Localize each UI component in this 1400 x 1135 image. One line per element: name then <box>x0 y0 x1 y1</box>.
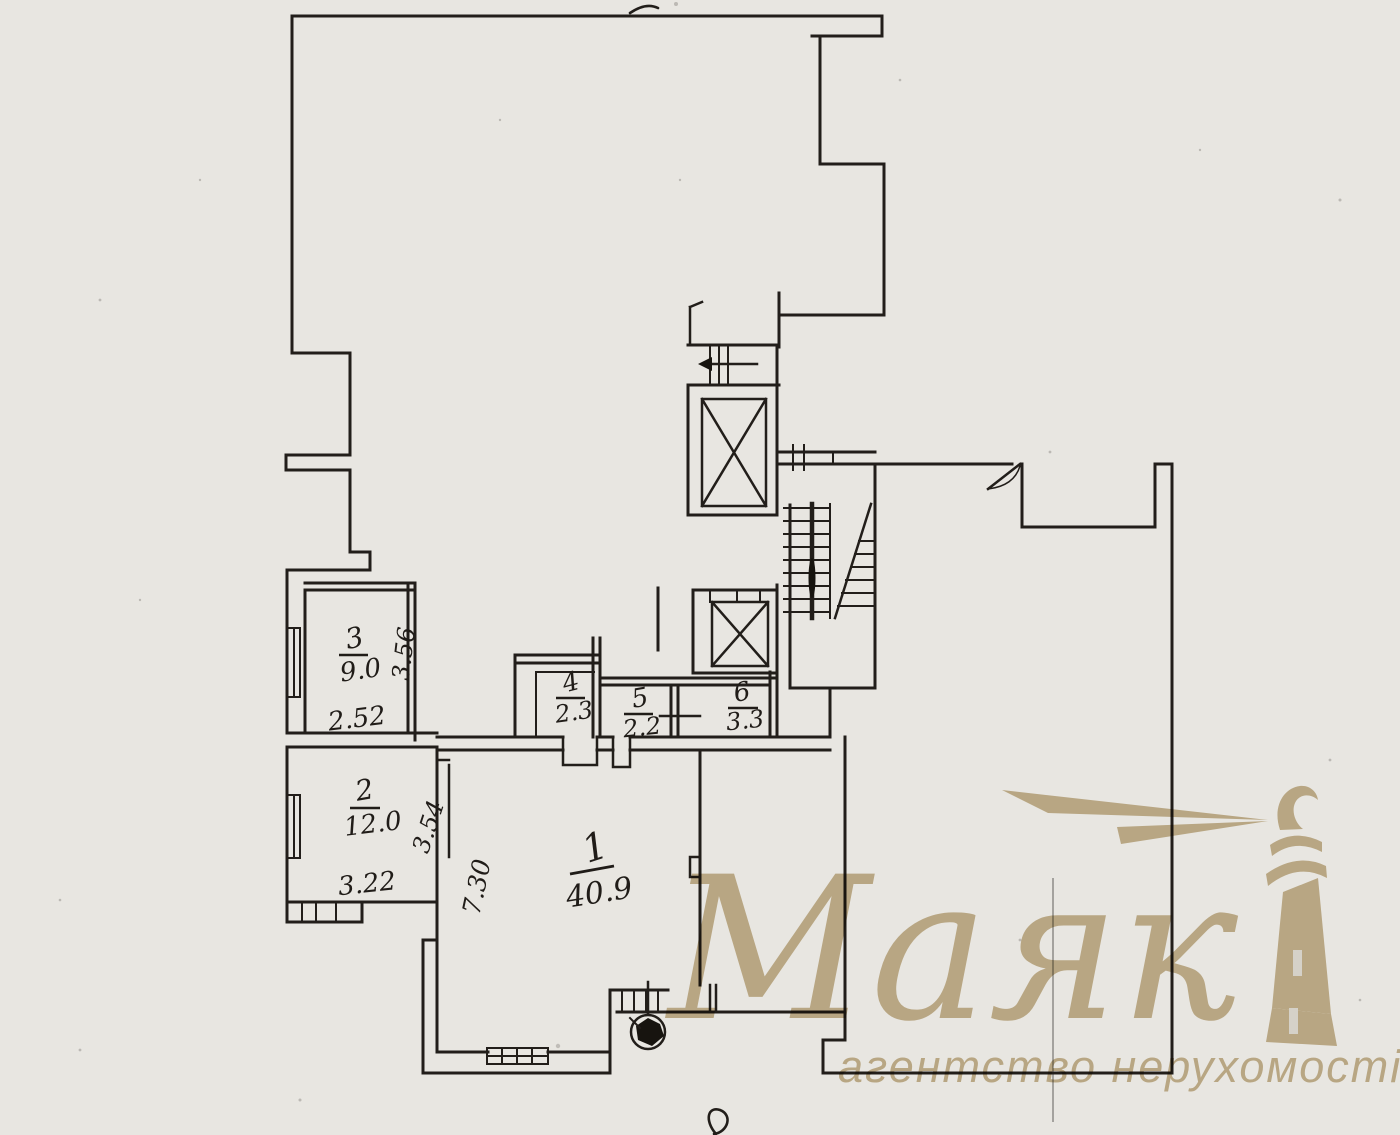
room-area: 9.0 <box>338 653 383 688</box>
room-area: 2.2 <box>621 711 663 743</box>
floor-plan-canvas: 1 40.9 2 12.0 3 9.0 4 2.3 5 2.2 <box>0 0 1400 1135</box>
scanned-floor-plan: 1 40.9 2 12.0 3 9.0 4 2.3 5 2.2 <box>0 0 1400 1135</box>
watermark-brand: Маяк <box>665 834 1239 1065</box>
dimension-room2-width: 3.22 <box>337 866 398 902</box>
room-area: 2.3 <box>552 696 595 729</box>
room-area: 3.3 <box>725 705 766 737</box>
watermark-tagline: агентство нерухомості <box>838 1041 1400 1092</box>
